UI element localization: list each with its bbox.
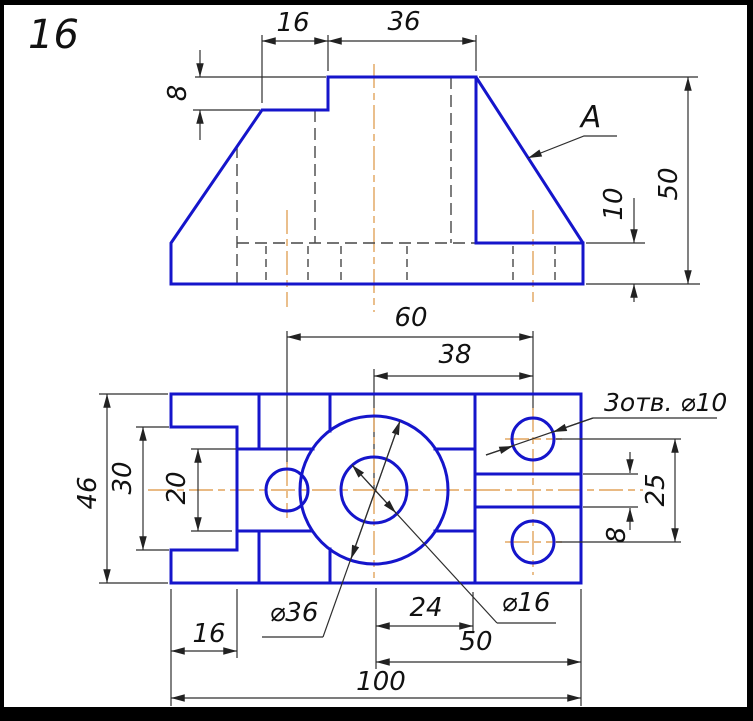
dim-step-offset: 16 [276,8,309,38]
drawing-sheet: 16 36 8 50 10 A 60 38 [0,0,753,721]
technical-drawing: 16 36 8 50 10 A 60 38 [0,0,753,721]
face-label-a: A [579,100,602,135]
dim-flange-height: 10 [599,187,629,220]
plan-view-leaders [262,418,717,637]
front-view-dimension-lines [200,41,688,302]
front-view-outline [171,77,583,284]
front-view-hidden-lines [237,77,555,284]
dim-total-depth: 46 [73,476,103,509]
between-extension-lines [287,331,533,497]
dim-right-holes-spacing: 25 [641,473,671,506]
dim-boss-diameter: ⌀36 [270,598,319,628]
holes-note: 3отв. ⌀10 [604,388,727,417]
dim-slot-width: 20 [162,471,192,504]
dim-top-width: 36 [387,7,420,37]
dim-holes-span: 60 [394,303,427,333]
dim-notch-depth: 30 [108,461,138,494]
dim-step-height: 8 [163,85,193,102]
front-view-center-lines [287,64,533,312]
dim-total-width: 100 [356,667,406,697]
between-view-dimensions: 60 38 [287,303,533,497]
dim-boss-to-edge: 50 [459,627,492,657]
plan-view: 46 30 20 16 ⌀36 ⌀16 3отв. ⌀10 24 50 100 … [73,388,727,706]
front-view-extension-lines [193,35,700,284]
sheet-number: 16 [28,12,79,58]
dim-tab-width: 16 [192,619,225,649]
dim-groove-width: 8 [602,527,632,544]
front-view: 16 36 8 50 10 A [163,7,700,312]
dim-boss-to-holes: 38 [438,340,471,370]
dim-center-hole-diameter: ⌀16 [502,588,551,618]
dim-boss-to-divider: 24 [409,593,442,623]
dim-total-height: 50 [654,167,684,200]
